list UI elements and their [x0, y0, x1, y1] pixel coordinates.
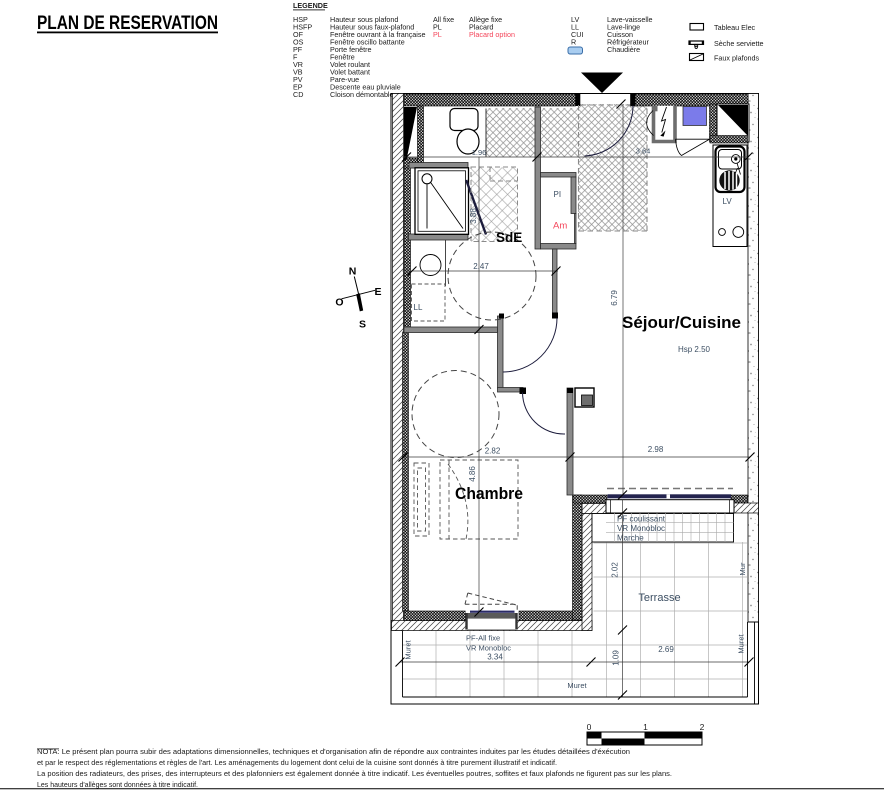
svg-text:O: O [335, 297, 343, 309]
svg-text:2.69: 2.69 [658, 645, 674, 654]
svg-text:Les hauteurs d'allèges sont do: Les hauteurs d'allèges sont données à ti… [37, 780, 198, 789]
svg-text:PI: PI [554, 190, 562, 199]
svg-text:La position des radiateurs, de: La position des radiateurs, des prises, … [37, 769, 672, 778]
svg-text:VR Monobloc: VR Monobloc [466, 644, 511, 653]
svg-text:Placard option: Placard option [469, 30, 515, 39]
svg-text:0: 0 [587, 722, 592, 732]
svg-text:LV: LV [723, 197, 733, 206]
svg-text:LEGENDE: LEGENDE [293, 1, 328, 10]
svg-text:Muret: Muret [404, 639, 413, 659]
svg-text:4.86: 4.86 [468, 466, 477, 482]
svg-text:LL: LL [414, 303, 423, 312]
svg-text:VR Monobloc: VR Monobloc [617, 524, 665, 533]
svg-text:Muret: Muret [737, 633, 746, 653]
svg-text:PL: PL [433, 30, 442, 39]
svg-text:Terrasse: Terrasse [638, 592, 680, 604]
svg-text:3.64: 3.64 [636, 147, 651, 156]
svg-text:Hsp 2.50: Hsp 2.50 [678, 345, 711, 354]
svg-text:6.79: 6.79 [610, 290, 619, 306]
svg-text:Séjour/Cuisine: Séjour/Cuisine [622, 313, 741, 332]
svg-text:1.96: 1.96 [472, 148, 487, 157]
svg-text:Sèche serviette: Sèche serviette [714, 39, 764, 48]
svg-text:E: E [374, 286, 381, 298]
svg-text:Faux plafonds: Faux plafonds [714, 54, 760, 63]
svg-text:Chambre: Chambre [455, 484, 523, 503]
svg-text:2.02: 2.02 [611, 562, 620, 578]
svg-text:et par le respect des réglemen: et par le respect des réglementations et… [37, 758, 557, 767]
svg-text:PLAN DE RESERVATION: PLAN DE RESERVATION [37, 13, 218, 34]
svg-text:R: R [571, 38, 576, 47]
svg-text:Marche: Marche [617, 534, 644, 543]
svg-text:Am: Am [553, 221, 567, 232]
svg-text:2: 2 [700, 722, 705, 732]
svg-text:PF-All fixe: PF-All fixe [466, 634, 500, 643]
svg-text:2.47: 2.47 [473, 262, 489, 271]
svg-text:SdE: SdE [496, 230, 522, 245]
svg-text:1.09: 1.09 [612, 650, 621, 666]
svg-text:2.82: 2.82 [485, 447, 501, 456]
svg-text:2.98: 2.98 [648, 445, 664, 454]
svg-text:CD: CD [293, 90, 303, 99]
svg-text:N: N [349, 266, 357, 278]
svg-text:PF coulissant: PF coulissant [617, 515, 666, 524]
svg-text:Muret: Muret [567, 681, 587, 690]
svg-text:Cloison démontable: Cloison démontable [330, 90, 394, 99]
svg-text:S: S [359, 319, 366, 331]
svg-text:3.34: 3.34 [487, 653, 503, 662]
svg-text:3.88: 3.88 [469, 208, 478, 224]
svg-text:Mur: Mur [738, 562, 747, 575]
svg-text:NOTA: Le présent plan pourra s: NOTA: Le présent plan pourra subir des a… [37, 747, 630, 756]
svg-text:Tableau Elec: Tableau Elec [714, 23, 756, 32]
svg-text:1: 1 [643, 722, 648, 732]
svg-text:Chaudière: Chaudière [607, 45, 640, 54]
